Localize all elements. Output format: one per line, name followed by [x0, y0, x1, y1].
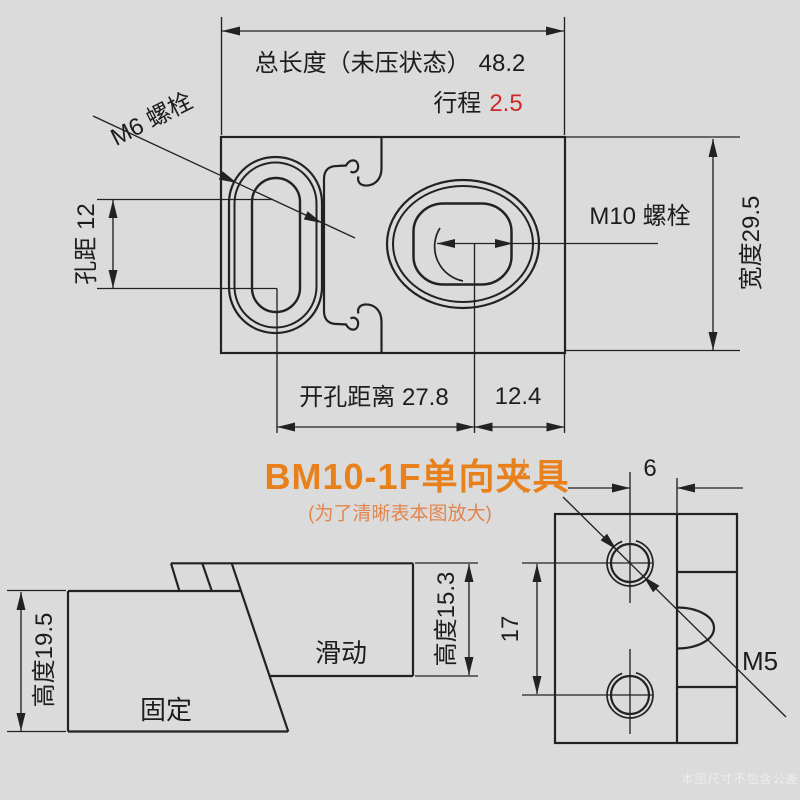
- stroke-value: 2.5: [489, 92, 522, 116]
- technical-drawing-page: 总长度（未压状态）48.2 行程 2.5 M6 螺栓 孔距 12 M10 螺栓 …: [0, 0, 800, 800]
- edge-distance-label: 12.4: [495, 385, 542, 409]
- fixed-part-label: 固定: [140, 697, 192, 723]
- total-length-label: 总长度（未压状态）: [255, 52, 471, 76]
- disclaimer-watermark: 本图尺寸不包含公差: [681, 773, 798, 785]
- side-view-dimension-lines: [7, 563, 478, 732]
- end-view-dimension-lines: [522, 472, 786, 734]
- product-subtitle: (为了清晰表本图放大): [308, 505, 492, 524]
- width-dimension-label: 宽度29.5: [740, 196, 764, 291]
- fixed-height-label: 高度19.5: [33, 613, 57, 708]
- m5-bolt-label: M5: [742, 648, 778, 674]
- logo-text: 夹具: [523, 451, 569, 498]
- stroke-dimension: 行程 2.5: [433, 92, 522, 116]
- sliding-height-label: 高度15.3: [435, 572, 459, 667]
- end-view-linework: [555, 514, 737, 743]
- total-length-value: 48.2: [479, 52, 526, 76]
- sliding-part-label: 滑动: [315, 640, 367, 666]
- hole-spacing-label: 17: [499, 616, 523, 643]
- m10-bolt-label: M10 螺栓: [589, 205, 690, 229]
- total-length-dimension: 总长度（未压状态）48.2: [255, 52, 526, 76]
- top-view-linework: [221, 137, 565, 353]
- stroke-label: 行程: [433, 92, 481, 116]
- hole-pitch-label: 孔距 12: [75, 203, 99, 284]
- hole-offset-label: 6: [643, 457, 656, 481]
- side-view-arrowheads: [17, 564, 474, 731]
- orange-logo-watermark: 夹具: [523, 451, 569, 498]
- opening-distance-label: 开孔距离 27.8: [299, 386, 448, 410]
